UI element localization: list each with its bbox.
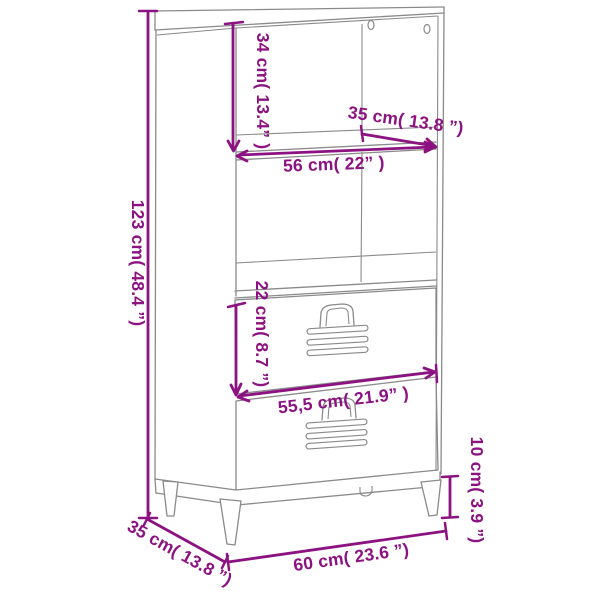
drawer-vent-slats-icon [306,419,367,449]
inner-width-label: 56 cm( 22” ) [283,152,385,176]
leg-height-label: 10 cm( 3.9 ”) [467,437,487,544]
plinth-notch-icon [360,486,372,496]
mounting-hole-icon [424,25,430,34]
drawer-handle-icon [320,304,354,327]
drawer-vent-slats-icon [307,325,368,356]
top-compartment-height-label: 34 cm( 13.4” ) [253,33,273,150]
cabinet-structure [155,7,444,545]
mounting-hole-icon [368,21,374,30]
overall-depth-label: 35 cm( 13.8 ”) [124,516,236,590]
cabinet-plinth [155,472,440,505]
front-right-leg [421,480,441,516]
back-left-leg [220,499,241,545]
front-left-leg [163,481,178,516]
top-depth-label: 35 cm( 13.8 ”) [347,102,465,138]
dimension-overall-width: 60 cm( 23.6 ”) [227,523,447,575]
overall-height-label: 123 cm( 48.4 ”) [128,200,148,327]
dimension-top-compartment-height: 34 cm( 13.4” ) [225,22,273,151]
cabinet-dimension-drawing: 123 cm( 48.4 ”) 34 cm( 13.4” ) 35 cm( 13… [0,0,600,600]
dimension-leg-height: 10 cm( 3.9 ”) [442,437,487,544]
dimension-top-depth: 35 cm( 13.8 ”) [347,102,465,150]
product-dimension-diagram: 123 cm( 48.4 ”) 34 cm( 13.4” ) 35 cm( 13… [0,0,600,600]
dimension-overall-height: 123 cm( 48.4 ”) [128,11,157,518]
cabinet-top-panel [155,7,444,35]
drawer-front-height-label: 22 cm( 8.7 ”) [252,281,272,388]
dimension-overall-depth: 35 cm( 13.8 ”) [124,513,236,590]
